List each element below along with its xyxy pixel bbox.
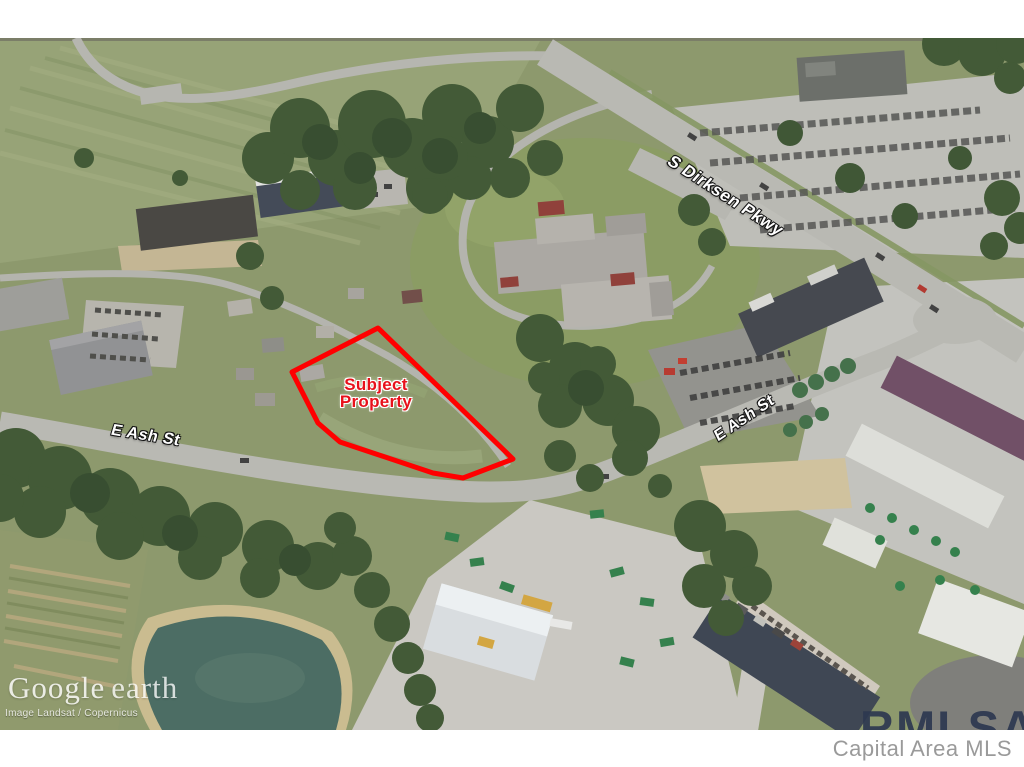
subject-label-line2: Property <box>312 393 440 410</box>
google-earth-logo: Googleearth <box>8 670 178 706</box>
google-earth-logo-google: Google <box>8 670 105 705</box>
caption-bar: Capital Area MLS <box>0 730 1024 767</box>
subject-property-label: Subject Property <box>312 376 440 410</box>
google-earth-logo-earth: earth <box>111 670 178 705</box>
aerial-imagery <box>0 38 1024 730</box>
subject-label-line1: Subject <box>312 376 440 393</box>
imagery-attribution: Image Landsat / Copernicus <box>5 708 138 719</box>
aerial-photo: Subject Property S Dirksen Pkwy E Ash St… <box>0 38 1024 730</box>
mls-watermark-overlay: RMLSA <box>860 700 1024 730</box>
mls-photo-page: Subject Property S Dirksen Pkwy E Ash St… <box>0 0 1024 767</box>
mls-caption: Capital Area MLS <box>833 736 1012 762</box>
